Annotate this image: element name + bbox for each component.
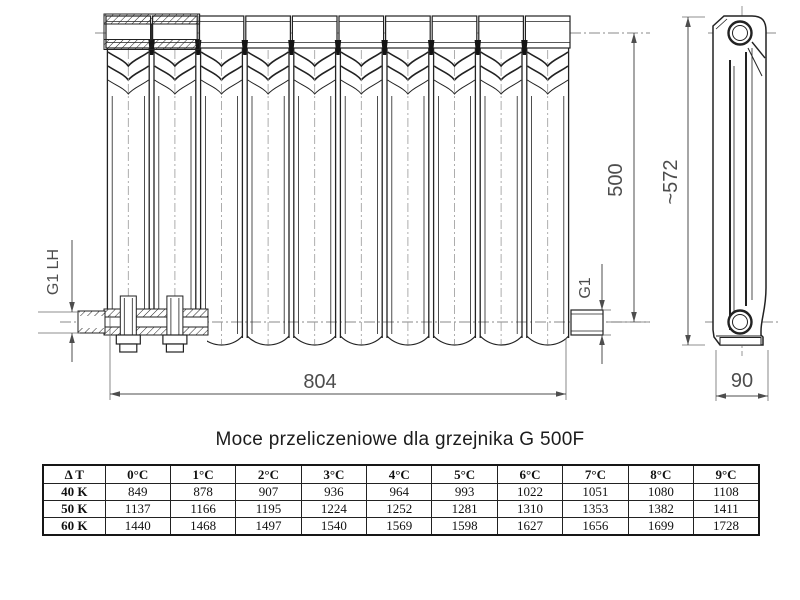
- drain-plug: [116, 335, 140, 352]
- bottom-channel: [167, 296, 183, 335]
- radiator-technical-drawing: 804 500 ~572 90 G1 LH: [0, 0, 800, 420]
- table-cell: 1627: [497, 518, 562, 536]
- table-cell: 1569: [367, 518, 432, 536]
- row-label: 50 K: [43, 501, 105, 518]
- dimension-width-label: 804: [303, 371, 336, 393]
- dimension-left-connection: G1 LH: [38, 240, 80, 362]
- table-header-cell: 7°C: [563, 465, 628, 484]
- power-table: Δ T 0°C 1°C 2°C 3°C 4°C 5°C 6°C 7°C 8°C …: [42, 464, 760, 536]
- table-cell: 1281: [432, 501, 497, 518]
- table-cell: 1310: [497, 501, 562, 518]
- bottom-header-section-cut: [104, 296, 208, 352]
- table-cell: 907: [236, 484, 301, 501]
- table-header-row: Δ T 0°C 1°C 2°C 3°C 4°C 5°C 6°C 7°C 8°C …: [43, 465, 759, 484]
- right-pipe-stub: [571, 310, 603, 335]
- table-header-cell: 1°C: [170, 465, 235, 484]
- left-pipe-stub: [78, 311, 105, 333]
- row-label: 40 K: [43, 484, 105, 501]
- drain-plug: [163, 335, 187, 352]
- top-connection-hole: [729, 22, 752, 45]
- dimension-axis-height: 500: [605, 33, 650, 322]
- table-cell: 1224: [301, 501, 366, 518]
- table-header-cell: 0°C: [105, 465, 170, 484]
- radiator-front-view: [78, 14, 603, 352]
- table-title: Moce przeliczeniowe dla grzejnika G 500F: [0, 429, 800, 451]
- table-header-cell: 9°C: [694, 465, 759, 484]
- table-cell: 1598: [432, 518, 497, 536]
- table-cell: 878: [170, 484, 235, 501]
- table-cell: 849: [105, 484, 170, 501]
- dimension-depth: 90: [716, 350, 768, 401]
- table-cell: 1051: [563, 484, 628, 501]
- table-cell: 1497: [236, 518, 301, 536]
- table-header-cell: Δ T: [43, 465, 105, 484]
- table-cell: 1080: [628, 484, 693, 501]
- table-cell: 936: [301, 484, 366, 501]
- dimension-depth-label: 90: [731, 370, 753, 392]
- table-cell: 1468: [170, 518, 235, 536]
- dimension-axis-height-label: 500: [605, 163, 627, 196]
- dimension-overall-height-label: ~572: [660, 159, 682, 204]
- table-header-cell: 3°C: [301, 465, 366, 484]
- table-row: 60 K 1440 1468 1497 1540 1569 1598 1627 …: [43, 518, 759, 536]
- radiator-side-view: [713, 16, 766, 345]
- bottom-channel: [120, 296, 136, 335]
- table-cell: 1411: [694, 501, 759, 518]
- left-connection-label: G1 LH: [45, 249, 62, 295]
- table-row: 50 K 1137 1166 1195 1224 1252 1281 1310 …: [43, 501, 759, 518]
- table-header-cell: 8°C: [628, 465, 693, 484]
- table-cell: 1540: [301, 518, 366, 536]
- table-row: 40 K 849 878 907 936 964 993 1022 1051 1…: [43, 484, 759, 501]
- table-header-cell: 5°C: [432, 465, 497, 484]
- table-cell: 1166: [170, 501, 235, 518]
- table-cell: 993: [432, 484, 497, 501]
- table-cell: 964: [367, 484, 432, 501]
- table-cell: 1252: [367, 501, 432, 518]
- right-connection-label: G1: [577, 277, 594, 298]
- table-header-cell: 6°C: [497, 465, 562, 484]
- table-cell: 1656: [563, 518, 628, 536]
- table-cell: 1195: [236, 501, 301, 518]
- table-cell: 1137: [105, 501, 170, 518]
- dimension-overall-height: ~572: [660, 17, 705, 345]
- table-cell: 1108: [694, 484, 759, 501]
- table-header-cell: 2°C: [236, 465, 301, 484]
- radiator-datasheet: 804 500 ~572 90 G1 LH: [0, 0, 800, 600]
- bottom-connection-hole: [729, 311, 752, 334]
- table-cell: 1699: [628, 518, 693, 536]
- table-header-cell: 4°C: [367, 465, 432, 484]
- table-cell: 1440: [105, 518, 170, 536]
- table-cell: 1728: [694, 518, 759, 536]
- table-cell: 1382: [628, 501, 693, 518]
- table-cell: 1022: [497, 484, 562, 501]
- row-label: 60 K: [43, 518, 105, 536]
- table-cell: 1353: [563, 501, 628, 518]
